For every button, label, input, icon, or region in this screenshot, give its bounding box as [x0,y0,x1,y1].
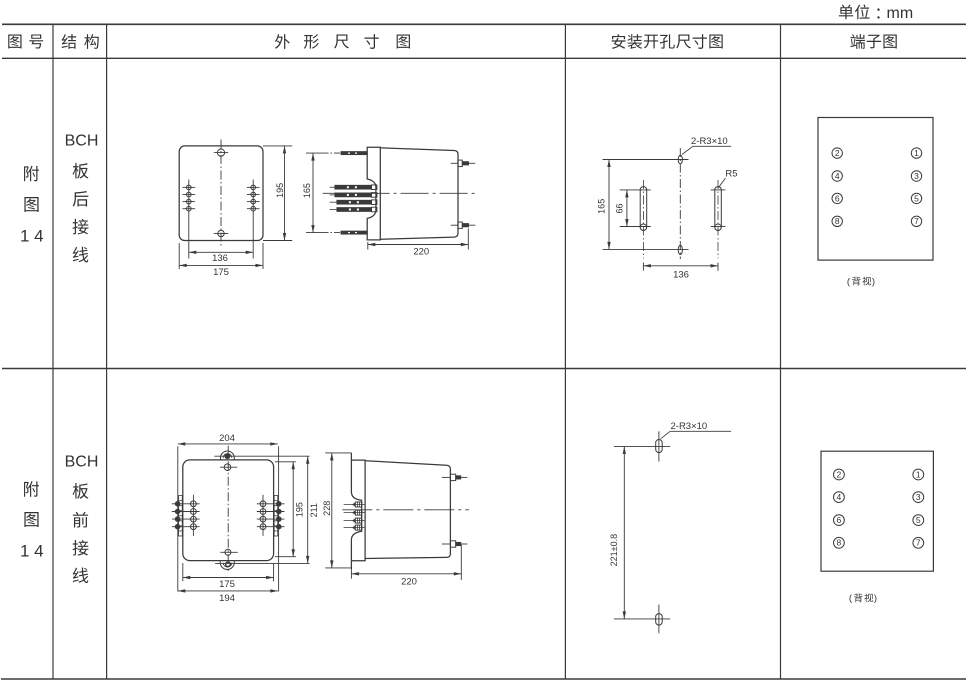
svg-text:mm: mm [887,5,914,22]
svg-text:195: 195 [295,502,305,517]
svg-text:165: 165 [597,199,607,214]
svg-text:195: 195 [275,183,285,198]
svg-text:BCH: BCH [65,453,99,470]
svg-text:1 4: 1 4 [20,542,44,561]
svg-text:): ) [872,276,875,287]
svg-text:2: 2 [835,148,840,158]
svg-text:66: 66 [614,203,624,213]
svg-text:1: 1 [914,148,919,158]
svg-text:8: 8 [837,538,842,548]
svg-text:BCH: BCH [65,132,99,149]
svg-text:220: 220 [401,577,417,588]
svg-text:6: 6 [837,515,842,525]
svg-text:2-R3×10: 2-R3×10 [691,136,728,147]
svg-text:221±0.8: 221±0.8 [609,534,619,566]
svg-text:4: 4 [835,171,840,181]
svg-text:R5: R5 [725,169,737,180]
svg-text:4: 4 [837,492,842,502]
svg-text:): ) [874,593,877,604]
svg-text:165: 165 [302,183,312,198]
svg-text:7: 7 [916,538,921,548]
svg-text:7: 7 [914,216,919,226]
svg-text:8: 8 [835,216,840,226]
svg-text:211: 211 [309,503,319,517]
svg-text:194: 194 [219,593,235,604]
svg-text:175: 175 [213,267,229,278]
svg-text:6: 6 [835,193,840,203]
svg-text:3: 3 [914,171,919,181]
svg-text:1: 1 [916,469,921,479]
svg-text:175: 175 [219,579,235,590]
svg-text:5: 5 [916,515,921,525]
svg-text:2-R3×10: 2-R3×10 [671,421,708,432]
svg-text:2: 2 [837,469,842,479]
svg-text:136: 136 [673,270,689,281]
svg-text:5: 5 [914,193,919,203]
svg-text:136: 136 [212,253,228,264]
svg-text:3: 3 [916,492,921,502]
svg-text:204: 204 [219,433,235,444]
svg-text:220: 220 [413,246,429,257]
svg-text:228: 228 [322,501,332,516]
svg-text:1 4: 1 4 [20,227,44,246]
